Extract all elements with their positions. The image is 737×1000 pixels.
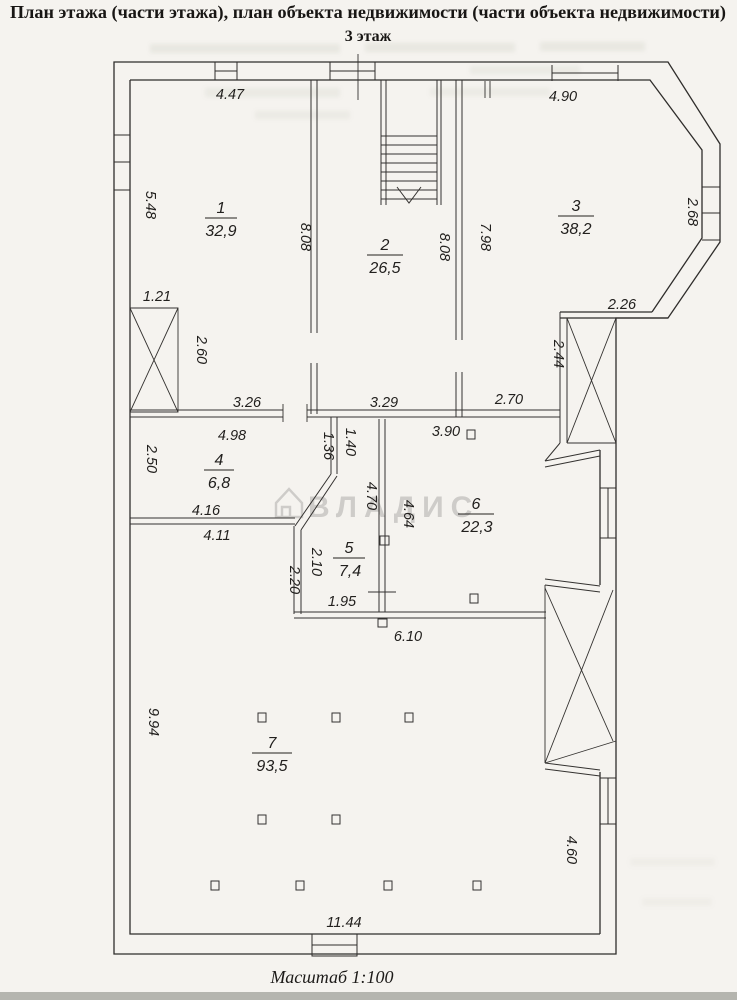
dim-room5-left-outer: 2.20 [286,565,302,594]
dim-bay-right: 2.68 [684,197,700,226]
svg-text:93,5: 93,5 [256,758,287,775]
dim-room7-left: 9.94 [145,708,161,736]
dim-room4-top: 4.98 [218,428,246,444]
dim-shaft-right: 2.60 [193,335,209,364]
dim-room1-bottom: 3.26 [233,395,262,411]
svg-text:6,8: 6,8 [208,475,230,492]
dim-wall-2-3-left: 8.08 [436,233,452,261]
dim-wall-5-6-left: 4.70 [363,482,379,510]
scan-edge-band [0,992,737,1000]
svg-text:2: 2 [380,237,390,254]
dim-stub-left: 1.36 [320,432,336,461]
svg-text:3: 3 [572,198,581,215]
dim-room3-right: 2.44 [550,339,566,368]
dim-room7-bottom: 11.44 [326,915,361,931]
dim-room4-bottom-outer: 4.16 [192,503,221,519]
dim-room4-bottom-inner: 4.11 [203,528,230,544]
dim-room5-left-inner: 2.10 [308,547,324,576]
dim-room6-bottom: 6.10 [394,629,422,645]
dim-room1-top: 4.47 [216,87,245,103]
dim-shaft-top: 1.21 [143,289,171,305]
svg-text:1: 1 [217,200,226,217]
dim-room7-right: 4.60 [563,836,579,864]
svg-text:5: 5 [345,540,354,557]
dim-bay-top: 4.90 [549,89,577,105]
svg-text:38,2: 38,2 [560,221,591,238]
svg-text:7: 7 [268,735,278,752]
dim-room3-bottom: 2.70 [494,392,523,408]
floor-plan-drawing: ВЛАДИС [0,0,737,1000]
dim-wall-5-6-right: 4.64 [400,500,416,528]
svg-text:6: 6 [472,496,481,513]
page-title: План этажа (части этажа), план объекта н… [10,2,726,22]
scanned-floor-plan-page: ВЛАДИС [0,0,737,1000]
dim-room2-bottom: 3.29 [370,395,398,411]
svg-text:7,4: 7,4 [339,563,361,580]
svg-text:4: 4 [215,452,224,469]
watermark-text: ВЛАДИС [308,491,479,524]
floor-label: 3 этаж [345,28,392,45]
dim-wall-2-3-right: 7.98 [477,223,493,251]
svg-text:22,3: 22,3 [460,519,492,536]
dim-wall-1-2: 8.08 [297,223,313,251]
svg-text:32,9: 32,9 [205,223,236,240]
dim-room1-left: 5.48 [142,191,158,219]
dim-room5-bottom: 1.95 [328,594,357,610]
dim-stub-right: 1.40 [342,428,358,456]
svg-text:26,5: 26,5 [368,260,400,277]
scale-label: Масштаб 1:100 [269,967,393,987]
dim-room4-left: 2.50 [143,444,159,473]
dim-bay-bottom: 2.26 [607,297,637,313]
dim-room6-top: 3.90 [432,424,460,440]
